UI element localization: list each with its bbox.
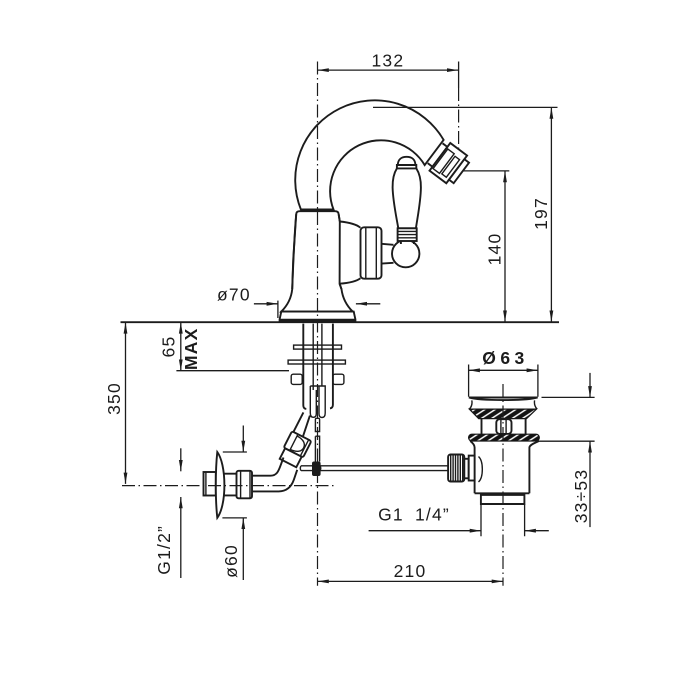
svg-text:350: 350 bbox=[104, 382, 124, 415]
svg-text:65: 65 bbox=[159, 336, 179, 358]
svg-text:210: 210 bbox=[394, 561, 427, 581]
svg-text:Ø63: Ø63 bbox=[482, 348, 529, 368]
svg-text:ø70: ø70 bbox=[217, 284, 251, 304]
svg-text:MAX: MAX bbox=[181, 328, 201, 371]
svg-text:33÷53: 33÷53 bbox=[571, 469, 591, 524]
svg-text:G1/2”: G1/2” bbox=[154, 525, 174, 575]
svg-text:197: 197 bbox=[531, 197, 551, 230]
svg-text:132: 132 bbox=[371, 50, 404, 70]
svg-text:140: 140 bbox=[485, 233, 505, 266]
svg-text:ø60: ø60 bbox=[221, 544, 241, 578]
svg-text:G1 1/4”: G1 1/4” bbox=[378, 505, 450, 525]
